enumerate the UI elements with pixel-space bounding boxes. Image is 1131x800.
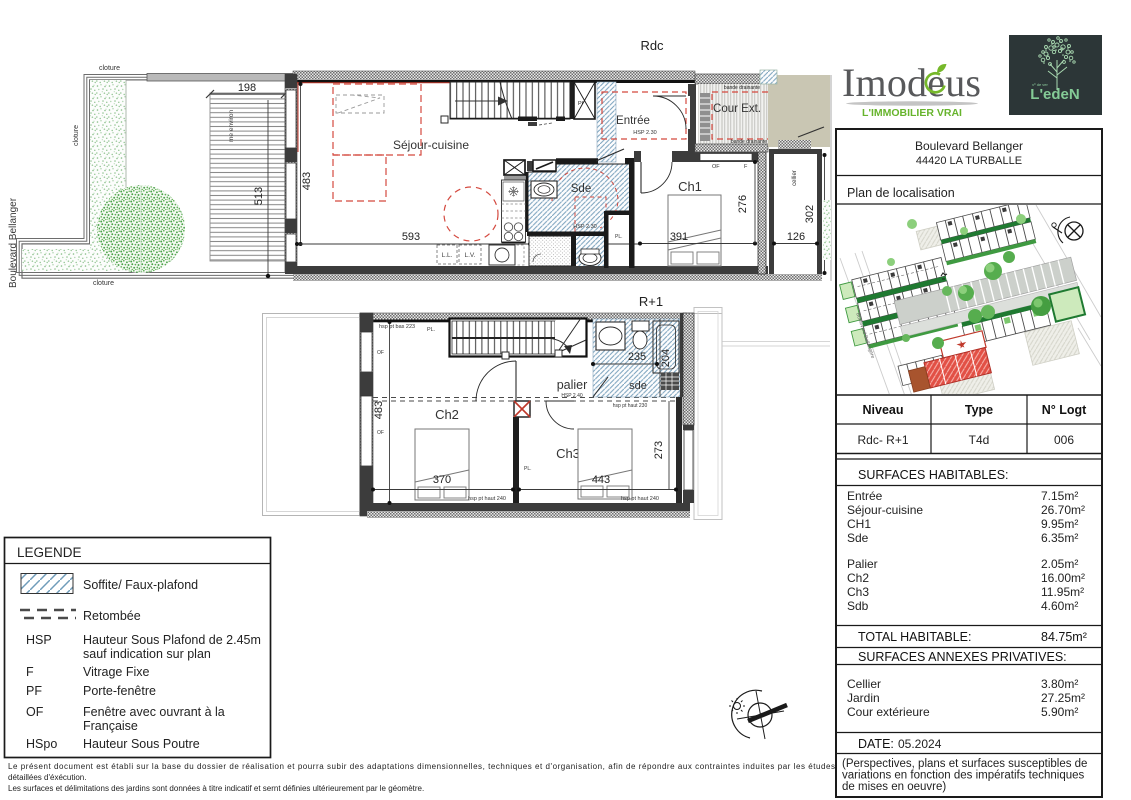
svg-text:R+1: R+1 <box>639 294 663 309</box>
svg-text:hsp pt bas 223: hsp pt bas 223 <box>379 324 415 330</box>
svg-text:PL.: PL. <box>615 234 623 240</box>
svg-text:PL.: PL. <box>524 466 532 472</box>
svg-text:bande drainante: bande drainante <box>724 85 760 91</box>
svg-text:hsp pt haut 240: hsp pt haut 240 <box>468 496 506 502</box>
svg-text:198: 198 <box>238 82 256 94</box>
svg-text:de mises en oeuvre): de mises en oeuvre) <box>842 781 946 793</box>
svg-text:SURFACES ANNEXES PRIVATIVES:: SURFACES ANNEXES PRIVATIVES: <box>858 650 1067 664</box>
svg-text:DATE:: DATE: <box>858 737 894 751</box>
svg-text:OF: OF <box>377 430 384 436</box>
svg-text:44420 LA TURBALLE: 44420 LA TURBALLE <box>916 155 1022 167</box>
svg-text:276: 276 <box>737 195 749 213</box>
svg-text:2.05m²: 2.05m² <box>1041 557 1078 571</box>
svg-text:me environ: me environ <box>228 109 235 142</box>
svg-text:273: 273 <box>653 441 665 459</box>
svg-text:Porte-fenêtre: Porte-fenêtre <box>83 684 156 698</box>
svg-text:hsp pt haut 230: hsp pt haut 230 <box>613 403 648 409</box>
svg-text:593: 593 <box>402 231 420 243</box>
svg-text:Cour Ext.: Cour Ext. <box>713 103 761 115</box>
svg-text:OF: OF <box>26 705 44 719</box>
svg-text:370: 370 <box>433 474 451 486</box>
svg-text:Ch1: Ch1 <box>678 179 702 194</box>
svg-text:6.35m²: 6.35m² <box>1041 531 1078 545</box>
svg-text:Entrée: Entrée <box>616 115 650 127</box>
svg-text:OF: OF <box>377 350 384 356</box>
svg-text:L'IMMOBILIER VRAI: L'IMMOBILIER VRAI <box>862 107 962 119</box>
svg-text:Imodeus: Imodeus <box>842 60 981 105</box>
svg-text:204: 204 <box>660 349 672 367</box>
svg-text:443: 443 <box>592 474 610 486</box>
svg-text:TOTAL HABITABLE:: TOTAL HABITABLE: <box>858 630 971 644</box>
svg-text:SURFACES HABITABLES:: SURFACES HABITABLES: <box>858 468 1009 482</box>
svg-text:Soffite/ Faux-plafond: Soffite/ Faux-plafond <box>83 578 198 592</box>
svg-text:Boulevard Bellanger: Boulevard Bellanger <box>8 197 19 288</box>
svg-text:Fenêtre avec ouvrant à la: Fenêtre avec ouvrant à la <box>83 705 225 719</box>
svg-text:variations en fonction des imp: variations en fonction des impératifs te… <box>842 770 1085 782</box>
svg-text:Jardin: Jardin <box>847 691 880 705</box>
svg-text:483: 483 <box>301 172 313 190</box>
svg-text:126: 126 <box>787 231 805 243</box>
svg-text:cloture: cloture <box>73 125 80 146</box>
svg-text:Séjour-cuisine: Séjour-cuisine <box>393 138 469 152</box>
svg-text:Ch3: Ch3 <box>556 446 580 461</box>
svg-text:HSP 2.40: HSP 2.40 <box>561 393 583 399</box>
svg-text:PL.: PL. <box>427 327 436 333</box>
svg-text:Ch2: Ch2 <box>435 407 459 422</box>
svg-text:LEGENDE: LEGENDE <box>17 545 82 560</box>
svg-text:N° Logt: N° Logt <box>1042 403 1087 417</box>
svg-text:Le présent document est établi: Le présent document est établi sur la ba… <box>8 762 835 771</box>
svg-text:L.L.: L.L. <box>442 252 453 259</box>
svg-text:3.80m²: 3.80m² <box>1041 677 1078 691</box>
svg-text:Rdc- R+1: Rdc- R+1 <box>857 433 908 447</box>
svg-text:26.70m²: 26.70m² <box>1041 503 1085 517</box>
svg-text:CH1: CH1 <box>847 517 871 531</box>
svg-text:HSpo: HSpo <box>26 737 57 751</box>
svg-text:Hauteur Sous Poutre: Hauteur Sous Poutre <box>83 737 200 751</box>
svg-text:Plan de localisation: Plan de localisation <box>847 186 955 200</box>
svg-text:9.95m²: 9.95m² <box>1041 517 1078 531</box>
svg-text:Française: Française <box>83 719 138 733</box>
svg-text:513: 513 <box>253 187 265 205</box>
svg-text:F: F <box>744 164 748 170</box>
svg-text:Retombée: Retombée <box>83 609 141 623</box>
svg-text:F: F <box>26 665 34 679</box>
svg-text:05.2024: 05.2024 <box>898 737 942 751</box>
svg-text:391: 391 <box>670 231 688 243</box>
svg-text:84.75m²: 84.75m² <box>1041 630 1087 644</box>
svg-text:Ch3: Ch3 <box>847 585 869 599</box>
svg-text:27.25m²: 27.25m² <box>1041 691 1085 705</box>
svg-text:Cellier: Cellier <box>847 677 881 691</box>
svg-text:Sde: Sde <box>571 183 591 195</box>
svg-text:Entrée: Entrée <box>847 489 883 503</box>
svg-text:Cour extérieure: Cour extérieure <box>847 705 930 719</box>
svg-text:302: 302 <box>804 205 816 223</box>
svg-text:Sde: Sde <box>847 531 869 545</box>
svg-text:HSP: HSP <box>26 633 52 647</box>
svg-text:16.00m²: 16.00m² <box>1041 571 1085 585</box>
svg-text:Sdb: Sdb <box>847 599 869 613</box>
svg-text:T4d: T4d <box>969 433 990 447</box>
svg-text:4.60m²: 4.60m² <box>1041 599 1078 613</box>
svg-text:Pl: Pl <box>578 101 583 107</box>
svg-text:HSP 2.30: HSP 2.30 <box>633 130 656 136</box>
svg-text:sde: sde <box>629 380 647 392</box>
svg-text:(Perspectives, plans et surfac: (Perspectives, plans et surfaces suscept… <box>842 758 1087 770</box>
svg-text:PF: PF <box>26 684 42 698</box>
svg-text:Boulevard Bellanger: Boulevard Bellanger <box>915 139 1023 153</box>
svg-text:483: 483 <box>373 401 385 419</box>
svg-text:Les surfaces et délimitations: Les surfaces et délimitations des jardin… <box>8 784 424 793</box>
svg-text:sauf indication sur plan: sauf indication sur plan <box>83 647 211 661</box>
svg-text:palier: palier <box>557 378 588 392</box>
svg-text:OF: OF <box>712 164 720 170</box>
svg-text:Type: Type <box>965 403 993 417</box>
svg-text:cellier: cellier <box>792 170 798 186</box>
svg-text:HSP 2.30: HSP 2.30 <box>573 224 596 230</box>
svg-text:7.15m²: 7.15m² <box>1041 489 1078 503</box>
svg-text:L.V.: L.V. <box>465 252 476 259</box>
svg-text:Palier: Palier <box>847 557 878 571</box>
svg-text:Ch2: Ch2 <box>847 571 869 585</box>
svg-text:détaillées d'éxécution.: détaillées d'éxécution. <box>8 773 86 782</box>
svg-text:Vitrage Fixe: Vitrage Fixe <box>83 665 150 679</box>
svg-text:Rdc: Rdc <box>640 38 664 53</box>
svg-text:hsp pt haut 240: hsp pt haut 240 <box>621 496 659 502</box>
svg-text:Niveau: Niveau <box>863 403 904 417</box>
svg-text:Hauteur Sous Plafond de 2.45m: Hauteur Sous Plafond de 2.45m <box>83 633 261 647</box>
svg-text:cloture: cloture <box>93 280 114 287</box>
svg-text:5.90m²: 5.90m² <box>1041 705 1078 719</box>
svg-text:Séjour-cuisine: Séjour-cuisine <box>847 503 923 517</box>
svg-text:L'edeN: L'edeN <box>1030 86 1079 103</box>
svg-text:cloture: cloture <box>99 65 120 72</box>
svg-text:235: 235 <box>628 351 646 363</box>
svg-text:006: 006 <box>1054 433 1074 447</box>
svg-text:11.95m²: 11.95m² <box>1041 585 1084 599</box>
